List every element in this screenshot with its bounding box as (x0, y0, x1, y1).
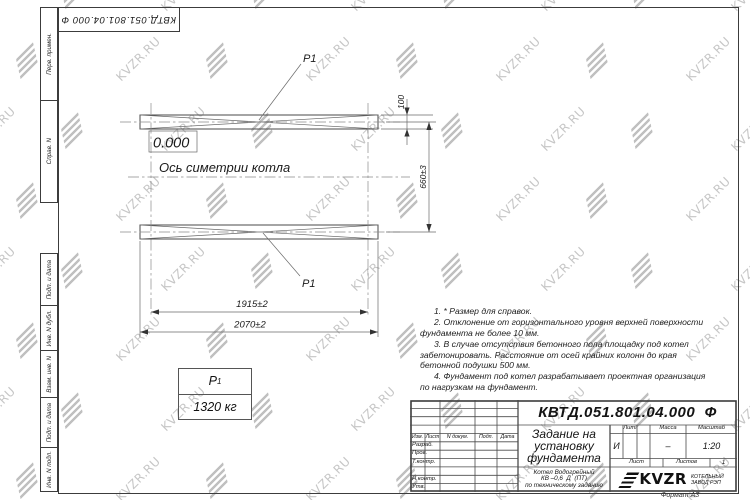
tb-doc-number: КВТД.051.801.04.000 Ф (518, 400, 737, 425)
tb-header-data: Дата (497, 434, 518, 442)
corner-doc-number: КВТД.051.801.04.000 Ф (61, 14, 176, 25)
side-stamp-bottom: Подп. и дата Инв. N дубл. Взам. инв. N П… (40, 253, 58, 492)
stamp-cell: Подп. и дата (41, 254, 57, 306)
stamp-label: Перв. примен. (46, 33, 53, 75)
tb-mass-value: – (650, 434, 686, 459)
dim-660-label: 660±3 (418, 165, 428, 189)
tb-mass-label: Масса (650, 425, 686, 434)
tb-sheet-label: Лист (610, 459, 663, 468)
tb-subtitle: Котел Водогрейный КВ –0,6 Д (ПТ) по техн… (518, 467, 610, 492)
load-label-top: Р1 (303, 53, 316, 65)
title-block: КВТД.051.801.04.000 Ф Задание на установ… (410, 400, 737, 492)
stamp-label: Подп. и дата (46, 260, 53, 299)
tb-row-prov: Пров. (412, 450, 440, 458)
elevation-value: 0.000 (153, 136, 189, 152)
dim-1915-label: 1915±2 (236, 299, 268, 310)
dimension-660: 660±3 (386, 122, 436, 232)
tb-scale-value: 1:20 (686, 434, 737, 459)
stamp-label: Взам. инв. N (46, 356, 53, 393)
tb-row-nkontr: Н.контр. (412, 475, 440, 483)
tb-row-utv: Утв. (412, 484, 440, 492)
tb-lit-value: И (610, 434, 623, 459)
stamp-cell: Инв. N дубл. (41, 306, 57, 351)
tb-logo-cell: KVZR КОТЕЛЬНЫЙ ЗАВОД РЭП (610, 467, 737, 492)
symmetry-axis-label: Ось симетрии котла (159, 160, 290, 175)
stamp-label: Справ. N (46, 138, 53, 164)
dimension-100: 100 (381, 95, 433, 145)
load-label-bottom: Р1 (302, 278, 315, 290)
tb-sheets-value: 1 (710, 459, 737, 468)
technical-notes: 1. * Размер для справок. 2. Отклонение о… (420, 306, 712, 393)
load-table: Р1 1320 кг (178, 368, 252, 420)
corner-doc-number-box: КВТД.051.801.04.000 Ф (58, 7, 180, 32)
tb-header-list: Лист (425, 434, 440, 442)
format-label: Формат А3 (640, 492, 720, 499)
load-value: 1320 кг (193, 400, 236, 414)
tb-scale-label: Масштаб (686, 425, 737, 434)
tb-row-tkontr: Т.контр. (412, 459, 440, 467)
kvzr-logo-mark-icon (619, 472, 640, 488)
tb-sheets-label: Листов (663, 459, 710, 468)
note-1: 1. * Размер для справок. (420, 306, 712, 316)
stamp-cell: Справ. N (41, 101, 57, 201)
tb-subtitle-line: по техническому заданию (525, 483, 603, 489)
tb-title: Задание на установку фундамента (518, 425, 610, 467)
load-leader-bottom: Р1 (263, 233, 315, 290)
stamp-label: Подп. и дата (46, 403, 53, 442)
stamp-label: Инв. N дубл. (46, 310, 53, 346)
note-3: 3. В случае отсутствия бетонного пола пл… (420, 339, 712, 370)
load-symbol: Р (209, 374, 217, 388)
kvzr-logo-text: KVZR (639, 472, 687, 487)
load-value-cell: 1320 кг (179, 395, 251, 420)
stamp-cell: Перв. примен. (41, 8, 57, 101)
note-2: 2. Отклонение от горизонтального уровня … (420, 317, 712, 338)
dim-2070-label: 2070±2 (233, 320, 266, 331)
beam-bottom (120, 225, 400, 239)
stamp-cell: Взам. инв. N (41, 351, 57, 398)
drawing-sheet: KVZR.RUKVZR.RUKVZR.RUKVZR.RUKVZR.RUKVZR.… (0, 0, 750, 500)
note-4: 4. Фундамент под котел разрабатывает про… (420, 371, 712, 392)
elevation-mark: 0.000 (149, 131, 197, 152)
load-leader-top: Р1 (259, 53, 316, 120)
tb-header-podp: Подп. (475, 434, 497, 442)
tb-title-line: фундамента (527, 452, 601, 464)
tb-row-razrab: Разраб. (412, 442, 440, 450)
stamp-cell: Инв. N подл. (41, 448, 57, 490)
dim-100-label: 100 (396, 95, 406, 109)
stamp-cell: Подп. и дата (41, 398, 57, 448)
load-symbol-cell: Р1 (179, 369, 251, 395)
tb-header-ndoc: N докум. (440, 434, 475, 442)
load-symbol-sub: 1 (217, 377, 221, 386)
kvzr-logo-subtext: КОТЕЛЬНЫЙ ЗАВОД РЭП (691, 474, 724, 486)
dimension-2070: 2070±2 (140, 241, 378, 337)
stamp-label: Инв. N подл. (46, 451, 53, 488)
logo-sub-line: ЗАВОД РЭП (691, 480, 721, 486)
beam-top (120, 115, 400, 129)
tb-lit-label: Лит. (610, 425, 650, 434)
tb-header-izm: Изм. (410, 434, 425, 442)
dimension-1915: 1915±2 (151, 299, 368, 315)
side-stamp-top: Перв. примен. Справ. N (40, 7, 58, 203)
